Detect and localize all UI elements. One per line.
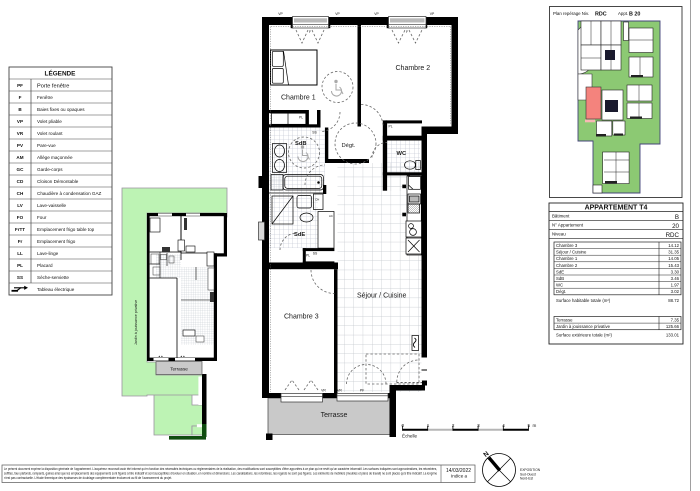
svg-text:Cloison Démontable: Cloison Démontable <box>37 179 79 184</box>
svg-text:WC: WC <box>397 151 407 157</box>
svg-text:SdE: SdE <box>556 269 564 274</box>
svg-text:Chambre 2: Chambre 2 <box>396 65 431 72</box>
svg-text:SdE: SdE <box>294 232 305 238</box>
svg-text:B 20: B 20 <box>629 11 640 17</box>
svg-text:FrTT: FrTT <box>15 227 25 232</box>
svg-text:Surface habitable totale (m²): Surface habitable totale (m²) <box>556 298 611 303</box>
svg-text:VR: VR <box>321 389 326 393</box>
svg-text:88.72: 88.72 <box>668 298 679 303</box>
svg-text:VP: VP <box>335 12 340 16</box>
svg-text:N° Appartement: N° Appartement <box>552 223 584 228</box>
svg-text:VR: VR <box>17 131 24 136</box>
svg-text:Jardin à jouissance privative: Jardin à jouissance privative <box>134 300 138 345</box>
svg-text:PL: PL <box>306 254 310 258</box>
svg-text:PF: PF <box>17 83 23 88</box>
svg-text:Chaudière à condensation GAZ: Chaudière à condensation GAZ <box>37 191 102 196</box>
svg-text:31.35: 31.35 <box>668 250 679 255</box>
svg-text:3.30: 3.30 <box>671 269 680 274</box>
svg-text:SdB: SdB <box>556 276 564 281</box>
svg-text:20: 20 <box>672 223 679 230</box>
svg-text:B: B <box>675 214 679 221</box>
svg-text:Échelle: Échelle <box>402 433 418 439</box>
svg-text:VP: VP <box>278 12 283 16</box>
svg-text:Niveau: Niveau <box>552 232 566 237</box>
svg-text:3.02: 3.02 <box>671 289 680 294</box>
svg-text:14.05: 14.05 <box>668 256 679 261</box>
svg-text:VP: VP <box>430 12 435 16</box>
svg-text:AM: AM <box>16 155 23 160</box>
svg-text:Chambre 1: Chambre 1 <box>281 95 316 102</box>
svg-text:SdB: SdB <box>295 141 307 147</box>
svg-text:LÉGENDE: LÉGENDE <box>45 69 77 78</box>
svg-text:SS: SS <box>313 252 318 256</box>
svg-text:Le présent document exprime la: Le présent document exprime la dispositi… <box>4 467 437 471</box>
svg-text:Allège maçonnée: Allège maçonnée <box>37 155 73 160</box>
svg-text:15.43: 15.43 <box>668 263 679 268</box>
svg-text:CD: CD <box>17 179 24 184</box>
svg-text:Lave-vaisselle: Lave-vaisselle <box>37 203 67 208</box>
svg-text:Garde-corps: Garde-corps <box>37 167 63 172</box>
svg-text:VP: VP <box>374 12 379 16</box>
svg-text:Appt.: Appt. <box>618 11 628 16</box>
svg-text:CH: CH <box>17 191 24 196</box>
svg-text:PL: PL <box>389 124 393 128</box>
svg-text:CH: CH <box>315 198 319 202</box>
svg-text:Terrasse: Terrasse <box>556 318 573 323</box>
svg-text:Lave-linge: Lave-linge <box>37 251 59 256</box>
svg-text:PL: PL <box>17 263 23 268</box>
svg-text:F: F <box>309 30 311 34</box>
svg-text:0: 0 <box>402 423 405 428</box>
svg-text:Emplacement frigo: Emplacement frigo <box>37 239 76 244</box>
svg-text:Chambre 3: Chambre 3 <box>556 243 578 248</box>
svg-text:Volet roulant: Volet roulant <box>37 131 63 136</box>
svg-text:PL: PL <box>299 115 303 119</box>
svg-text:7.35: 7.35 <box>671 318 680 323</box>
svg-text:Indice a: Indice a <box>451 474 468 479</box>
svg-text:125.66: 125.66 <box>666 324 680 329</box>
svg-text:F: F <box>19 95 22 100</box>
svg-text:n’est pas contractuelle. L’étu: n’est pas contractuelle. L’étude thermiq… <box>4 476 172 480</box>
svg-text:soffites, faux plafonds, rampa: soffites, faux plafonds, rampants, gaine… <box>4 472 437 476</box>
svg-text:Dégt.: Dégt. <box>342 143 356 149</box>
svg-text:Bâtiment: Bâtiment <box>552 214 570 219</box>
svg-text:RDC: RDC <box>666 232 680 239</box>
svg-text:Tableau électrique: Tableau électrique <box>37 287 75 292</box>
svg-text:3.46: 3.46 <box>671 276 680 281</box>
svg-text:m: m <box>533 423 537 428</box>
svg-text:LL: LL <box>17 251 23 256</box>
svg-text:APPARTEMENT T4: APPARTEMENT T4 <box>585 205 648 212</box>
svg-text:Jardin à jouissance privative: Jardin à jouissance privative <box>556 324 611 329</box>
svg-text:Plan repérage Niv.: Plan repérage Niv. <box>553 11 589 16</box>
svg-text:Surface extérieure totale (m²): Surface extérieure totale (m²) <box>556 333 612 338</box>
svg-text:Nord-Est: Nord-Est <box>520 477 533 481</box>
svg-text:EXPOSITION: EXPOSITION <box>520 468 541 472</box>
svg-text:Terrasse: Terrasse <box>321 412 348 419</box>
svg-text:Emplacement frigo table top: Emplacement frigo table top <box>37 227 95 232</box>
svg-text:PF: PF <box>360 389 364 393</box>
svg-text:Porte fenêtre: Porte fenêtre <box>37 84 69 90</box>
svg-text:VR: VR <box>337 389 342 393</box>
svg-text:VP: VP <box>17 119 23 124</box>
svg-text:RDC: RDC <box>595 11 607 17</box>
svg-text:F: F <box>406 30 408 34</box>
svg-text:Sèche-serviette: Sèche-serviette <box>37 275 69 280</box>
svg-text:▲▲: ▲▲ <box>158 355 164 358</box>
svg-text:1: 1 <box>427 423 430 428</box>
svg-text:WC: WC <box>556 283 563 288</box>
svg-text:Terrasse: Terrasse <box>170 367 188 372</box>
svg-text:Dégt.: Dégt. <box>556 289 566 294</box>
svg-text:Chambre 2: Chambre 2 <box>556 263 578 268</box>
svg-text:PV: PV <box>17 143 24 148</box>
svg-text:FO: FO <box>17 215 24 220</box>
svg-text:4: 4 <box>502 423 505 428</box>
svg-text:Chambre 3: Chambre 3 <box>284 314 319 321</box>
svg-text:Séjour / Cuisine: Séjour / Cuisine <box>556 250 587 255</box>
svg-text:Baies fixes ou opaques: Baies fixes ou opaques <box>37 107 85 112</box>
svg-text:Pare-vue: Pare-vue <box>37 143 56 148</box>
svg-text:Fr: Fr <box>18 239 23 244</box>
svg-text:Chambre 1: Chambre 1 <box>556 256 578 261</box>
svg-text:3: 3 <box>477 423 480 428</box>
svg-text:Volet pliable: Volet pliable <box>37 119 62 124</box>
svg-text:SS: SS <box>17 275 23 280</box>
svg-text:Séjour / Cuisine: Séjour / Cuisine <box>357 293 407 300</box>
svg-text:14.12: 14.12 <box>668 243 679 248</box>
svg-text:AC: AC <box>329 214 333 218</box>
svg-text:Placard: Placard <box>37 263 53 268</box>
svg-text:133.01: 133.01 <box>666 333 680 338</box>
svg-text:SS: SS <box>312 131 317 135</box>
svg-text:▲▲: ▲▲ <box>180 355 186 358</box>
svg-text:Fenêtre: Fenêtre <box>37 95 53 100</box>
svg-text:5: 5 <box>528 423 531 428</box>
svg-text:2: 2 <box>452 423 455 428</box>
svg-text:1.97: 1.97 <box>671 283 680 288</box>
svg-text:Four: Four <box>37 215 47 220</box>
svg-text:GC: GC <box>17 167 25 172</box>
svg-text:LV: LV <box>17 203 23 208</box>
